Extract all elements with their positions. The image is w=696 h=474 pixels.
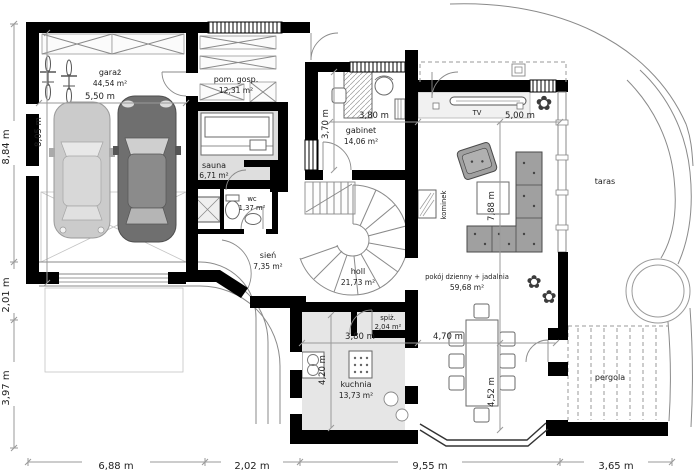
window: [208, 22, 282, 33]
plant-icon: ✿: [526, 272, 541, 293]
sauna-bench: [201, 113, 273, 155]
room-label-sauna: sauna: [202, 161, 226, 170]
room-label-pom-gosp: pom. gosp.: [214, 75, 259, 84]
dim-garage-height: 8,05 m: [34, 117, 44, 147]
plant-icon: ✿: [536, 91, 553, 115]
dim-gabinet-width: 3,80 m: [359, 111, 389, 121]
floor-plan: garaż 44,54 m² pom. gosp. 12,31 m² sauna…: [0, 0, 696, 474]
room-label-kuchnia: kuchnia: [340, 380, 371, 389]
room-area-garaz: 44,54 m²: [93, 79, 127, 88]
dim-left-0: 8,84 m: [1, 129, 12, 164]
room-area-kuchnia: 13,73 m²: [339, 391, 373, 400]
car-light: [49, 102, 115, 238]
room-label-holl: holl: [351, 267, 365, 276]
toilet: [226, 195, 240, 219]
fireplace: [418, 190, 436, 218]
room-area-wc: 1,37 m²: [239, 204, 266, 212]
round-terrace: [626, 259, 690, 323]
dim-kitchen-width: 3,80 m: [345, 332, 375, 342]
floor-plan-drawing: garaż 44,54 m² pom. gosp. 12,31 m² sauna…: [0, 0, 696, 474]
room-label-gabinet: gabinet: [346, 126, 376, 135]
dim-garage-width: 5,50 m: [85, 92, 115, 102]
plant-icon: ✿: [541, 287, 556, 308]
skylight: [512, 64, 525, 76]
room-area-pokoj: 59,68 m²: [450, 283, 484, 292]
desk-chair: [375, 77, 393, 95]
dim-left-1: 2,01 m: [1, 277, 12, 312]
dim-kitchen-height: 4,20 m: [318, 355, 328, 385]
dim-left-2: 3,97 m: [1, 370, 12, 405]
room-label-sien: sień: [260, 251, 276, 260]
dim-living-width: 5,00 m: [505, 111, 535, 121]
dim-bottom-2: 9,55 m: [412, 461, 447, 472]
dim-bottom-1: 2,02 m: [234, 461, 269, 472]
room-area-pom-gosp: 12,31 m²: [219, 86, 253, 95]
room-label-spiz: spiż.: [380, 314, 395, 322]
car-dark: [113, 96, 181, 242]
dim-gabinet-height: 3,70 m: [321, 109, 331, 139]
room-area-sien: 7,35 m²: [253, 262, 282, 271]
dim-bottom-0: 6,88 m: [98, 461, 133, 472]
room-label-taras: taras: [595, 177, 615, 186]
tv-label: TV: [472, 109, 482, 117]
room-label-kominek: kominek: [440, 191, 448, 220]
radiator: [395, 99, 405, 119]
room-label-pergola: pergola: [595, 373, 625, 382]
dim-bottom-3: 3,65 m: [598, 461, 633, 472]
room-label-garaz: garaż: [99, 68, 121, 77]
room-area-spiz: 2,04 m²: [375, 323, 402, 331]
dim-living-height: 7,88 m: [487, 191, 497, 221]
room-label-wc: wc: [247, 195, 257, 203]
dim-dining-height: 4,52 m: [487, 377, 497, 407]
window: [350, 62, 405, 72]
window: [305, 140, 318, 170]
room-area-gabinet: 14,06 m²: [344, 137, 378, 146]
dim-dining-width: 4,70 m: [433, 332, 463, 342]
wc-sink: [245, 214, 261, 225]
room-area-holl: 21,73 m²: [341, 278, 375, 287]
room-area-sauna: 6,71 m²: [199, 171, 228, 180]
room-label-pokoj: pokój dzienny + jadalnia: [425, 273, 509, 281]
shower: [195, 197, 220, 222]
